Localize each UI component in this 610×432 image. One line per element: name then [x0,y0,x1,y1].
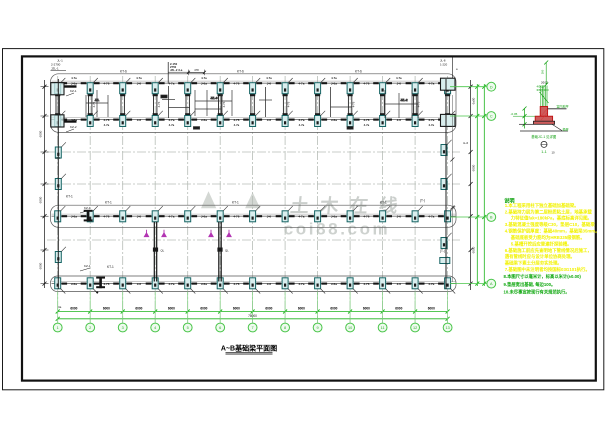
svg-text:4-7a: 4-7a [298,118,304,122]
svg-text:KZ-1: KZ-1 [70,89,77,93]
svg-text:4-7a: 4-7a [234,123,240,127]
svg-text:KZ-1: KZ-1 [84,206,91,210]
svg-text:4-76: 4-76 [363,282,369,286]
svg-text:4-76: 4-76 [103,118,109,122]
svg-text:-0.05: -0.05 [511,112,518,116]
svg-text:J-6: J-6 [267,282,272,286]
svg-text:6000: 6000 [135,306,142,310]
svg-text:J-6a: J-6a [331,282,337,286]
svg-text:J-6: J-6 [267,214,272,218]
svg-text:4-76: 4-76 [222,101,226,107]
svg-text:KZ-2: KZ-2 [70,125,77,129]
svg-text:4-7a: 4-7a [428,123,434,127]
svg-text:4-7a: 4-7a [299,123,305,127]
svg-text:4-76: 4-76 [92,101,96,107]
svg-text:J-6a: J-6a [71,282,77,286]
svg-text:4-76: 4-76 [103,214,109,218]
svg-text:J-6: J-6 [397,81,402,85]
svg-text:J-6: J-6 [137,282,142,286]
svg-text:6: 6 [219,326,221,330]
svg-text:4-7a: 4-7a [168,282,174,286]
svg-text:1.本工程采用柱下独立基础加基础梁。: 1.本工程采用柱下独立基础加基础梁。 [505,202,579,209]
svg-text:6000: 6000 [363,306,370,310]
svg-text:J-6a: J-6a [331,214,337,218]
svg-text:J-6: J-6 [137,118,142,122]
svg-text:JZL-1: JZL-1 [51,67,59,71]
svg-text:J-6a: J-6a [71,214,77,218]
svg-text:J-6: J-6 [137,214,142,218]
svg-text:J-6a: J-6a [201,118,207,122]
svg-text:4-7a: 4-7a [298,282,304,286]
svg-text:2: 2 [89,326,91,330]
svg-text:6.基础施工前应先查明地下管线情况后施工，: 6.基础施工前应先查明地下管线情况后施工， [505,247,592,254]
svg-text:4-7a: 4-7a [71,76,77,80]
svg-text:基础底板受力筋均为HRB335级钢筋。: 基础底板受力筋均为HRB335级钢筋。 [511,234,585,241]
svg-text:6000: 6000 [168,306,175,310]
svg-text:6000: 6000 [103,306,110,310]
svg-text:1: 1 [57,326,59,330]
svg-text:基础梁下素土分层夯实处理。: 基础梁下素土分层夯实处理。 [505,260,562,267]
svg-text:6000: 6000 [265,306,272,310]
svg-text:6000: 6000 [200,306,207,310]
svg-text:4-76: 4-76 [233,282,239,286]
svg-text:KT-1: KT-1 [380,200,387,204]
svg-text:13: 13 [445,326,449,330]
svg-text:6000: 6000 [70,306,77,310]
svg-text:Da: Da [58,305,62,309]
svg-text:D: D [490,85,493,89]
svg-text:J-6a: J-6a [331,118,337,122]
svg-text:A: A [490,282,493,286]
svg-text:4-7a: 4-7a [266,76,272,80]
svg-text:4-7a: 4-7a [428,214,434,218]
svg-text:A~B基础梁平面图: A~B基础梁平面图 [221,344,277,353]
svg-text:KT-1: KT-1 [232,200,239,204]
svg-text:4-7a: 4-7a [169,123,175,127]
svg-text:4-7a: 4-7a [364,123,370,127]
svg-text:6000: 6000 [298,306,305,310]
svg-text:J-6: J-6 [267,118,272,122]
svg-text:4-7a: 4-7a [331,76,337,80]
svg-text:遇有管线时应与设计单位协商处理。: 遇有管线时应与设计单位协商处理。 [505,253,575,260]
svg-text:4-7a: 4-7a [168,214,174,218]
svg-text:(T-): (T-) [420,199,425,203]
svg-text:4-7a: 4-7a [201,76,207,80]
svg-text:JZL-2: JZL-2 [400,98,408,102]
svg-text:4-7a: 4-7a [104,123,110,127]
svg-text:2.基础持力层为第二层粉质粘土层，地基承载: 2.基础持力层为第二层粉质粘土层，地基承载 [505,208,593,215]
svg-text:4-7a: 4-7a [298,214,304,218]
svg-text:6000: 6000 [233,306,240,310]
svg-text:C: C [490,115,493,119]
svg-text:6000: 6000 [39,130,43,137]
svg-text:室内地坪: 室内地坪 [557,103,569,108]
svg-text:7.基础图中未注明者均按国标03G101执行。: 7.基础图中未注明者均按国标03G101执行。 [505,266,590,273]
svg-text:4-76: 4-76 [103,81,109,85]
svg-text:6000: 6000 [472,246,476,253]
svg-text:4-7a: 4-7a [298,81,304,85]
svg-text:JZL-3: JZL-3 [210,96,218,100]
svg-text:9: 9 [317,326,319,330]
svg-text:478: 478 [194,68,199,72]
svg-text:KT-6: KT-6 [237,70,244,74]
svg-text:6000: 6000 [395,306,402,310]
svg-text:(T-): (T-) [440,249,445,253]
svg-text:B: B [490,216,493,220]
svg-text:9.垫层宽出基础, 每边100。: 9.垫层宽出基础, 每边100。 [504,281,556,288]
svg-text:10: 10 [348,326,352,330]
svg-text:J-6: J-6 [397,282,402,286]
svg-text:4.钢筋保护层厚度：基础40mm，基础梁35mm。: 4.钢筋保护层厚度：基础40mm，基础梁35mm。 [505,228,600,235]
svg-text:Φ8@200: Φ8@200 [537,88,549,92]
svg-text:基础JC-1 见详图: 基础JC-1 见详图 [531,134,557,139]
svg-text:6000: 6000 [472,164,476,171]
svg-text:KT-1: KT-1 [105,200,112,204]
svg-text:6000: 6000 [39,196,43,203]
svg-text:8: 8 [284,326,286,330]
svg-text:3.基础混凝土强度等级C30，垫层C10，基础梁: 3.基础混凝土强度等级C30，垫层C10，基础梁 [505,221,596,228]
svg-text:JZL: JZL [95,98,100,102]
svg-text:4-76: 4-76 [363,214,369,218]
svg-text:12: 12 [413,326,417,330]
svg-text:1-1: 1-1 [541,150,547,154]
svg-text:KZ-1: KZ-1 [84,264,91,268]
svg-text:6000: 6000 [39,262,43,269]
svg-text:4-76: 4-76 [233,81,239,85]
svg-text:4-7a: 4-7a [428,81,434,85]
svg-text:10: 10 [552,151,556,155]
svg-text:tL-6: tL-6 [463,141,469,145]
svg-text:4-7a: 4-7a [168,118,174,122]
svg-text:3: 3 [122,326,124,330]
svg-text:J-6a: J-6a [201,214,207,218]
svg-text:J-6a: J-6a [331,81,337,85]
svg-text:4-76: 4-76 [363,81,369,85]
svg-text:4: 4 [154,326,156,330]
svg-text:J-6a: J-6a [71,81,77,85]
svg-text:J-6: J-6 [397,118,402,122]
svg-text:5.基槽开挖后应普遍钎探验槽。: 5.基槽开挖后应普遍钎探验槽。 [511,240,572,247]
svg-text:4-76: 4-76 [363,118,369,122]
svg-text:1-220: 1-220 [440,63,448,67]
svg-text:J-6: J-6 [137,81,142,85]
svg-text:JZL-2 3-a: JZL-2 3-a [170,68,183,72]
svg-text:6a00: 6a00 [472,97,476,104]
svg-text:J-6: J-6 [267,81,272,85]
svg-text:J-6a: J-6a [201,282,207,286]
svg-text:J-6: J-6 [397,214,402,218]
svg-text:垫层: 垫层 [563,126,569,131]
svg-text:KT-6: KT-6 [355,70,362,74]
svg-text:4-7a: 4-7a [136,76,142,80]
svg-text:11: 11 [381,326,385,330]
svg-text:KT-1: KT-1 [66,195,73,199]
svg-text:4-7a: 4-7a [428,118,434,122]
svg-text:4-7a: 4-7a [168,81,174,85]
svg-text:4-76: 4-76 [287,101,291,107]
svg-text:500: 500 [541,69,545,74]
svg-text:4-76: 4-76 [157,101,161,107]
svg-text:KT-1: KT-1 [107,265,114,269]
svg-text:力特征值fak=180kPa，基底标高详见图。: 力特征值fak=180kPa，基底标高详见图。 [511,215,592,222]
svg-text:7: 7 [252,326,254,330]
svg-text:6000: 6000 [330,306,337,310]
svg-text:5: 5 [187,326,189,330]
svg-text:KT-6: KT-6 [120,70,127,74]
svg-text:4-7a: 4-7a [396,76,402,80]
svg-text:4-76: 4-76 [233,214,239,218]
svg-text:JZ-1: JZ-1 [55,156,61,160]
svg-text:QL: QL [225,249,229,253]
svg-text:10.未尽事宜按现行有关规范执行。: 10.未尽事宜按现行有关规范执行。 [504,288,570,295]
svg-text:4-76: 4-76 [103,282,109,286]
svg-text:4-7a: 4-7a [428,282,434,286]
svg-text:QL: QL [161,249,165,253]
svg-text:4-76: 4-76 [233,118,239,122]
svg-text:6000: 6000 [428,306,435,310]
svg-text:4-76: 4-76 [352,101,356,107]
svg-text:coi88.com: coi88.com [284,220,391,239]
svg-text:8.本图尺寸以毫米计，标高以米计(±0.00): 8.本图尺寸以毫米计，标高以米计(±0.00) [504,273,582,280]
svg-text:J-6a: J-6a [201,81,207,85]
